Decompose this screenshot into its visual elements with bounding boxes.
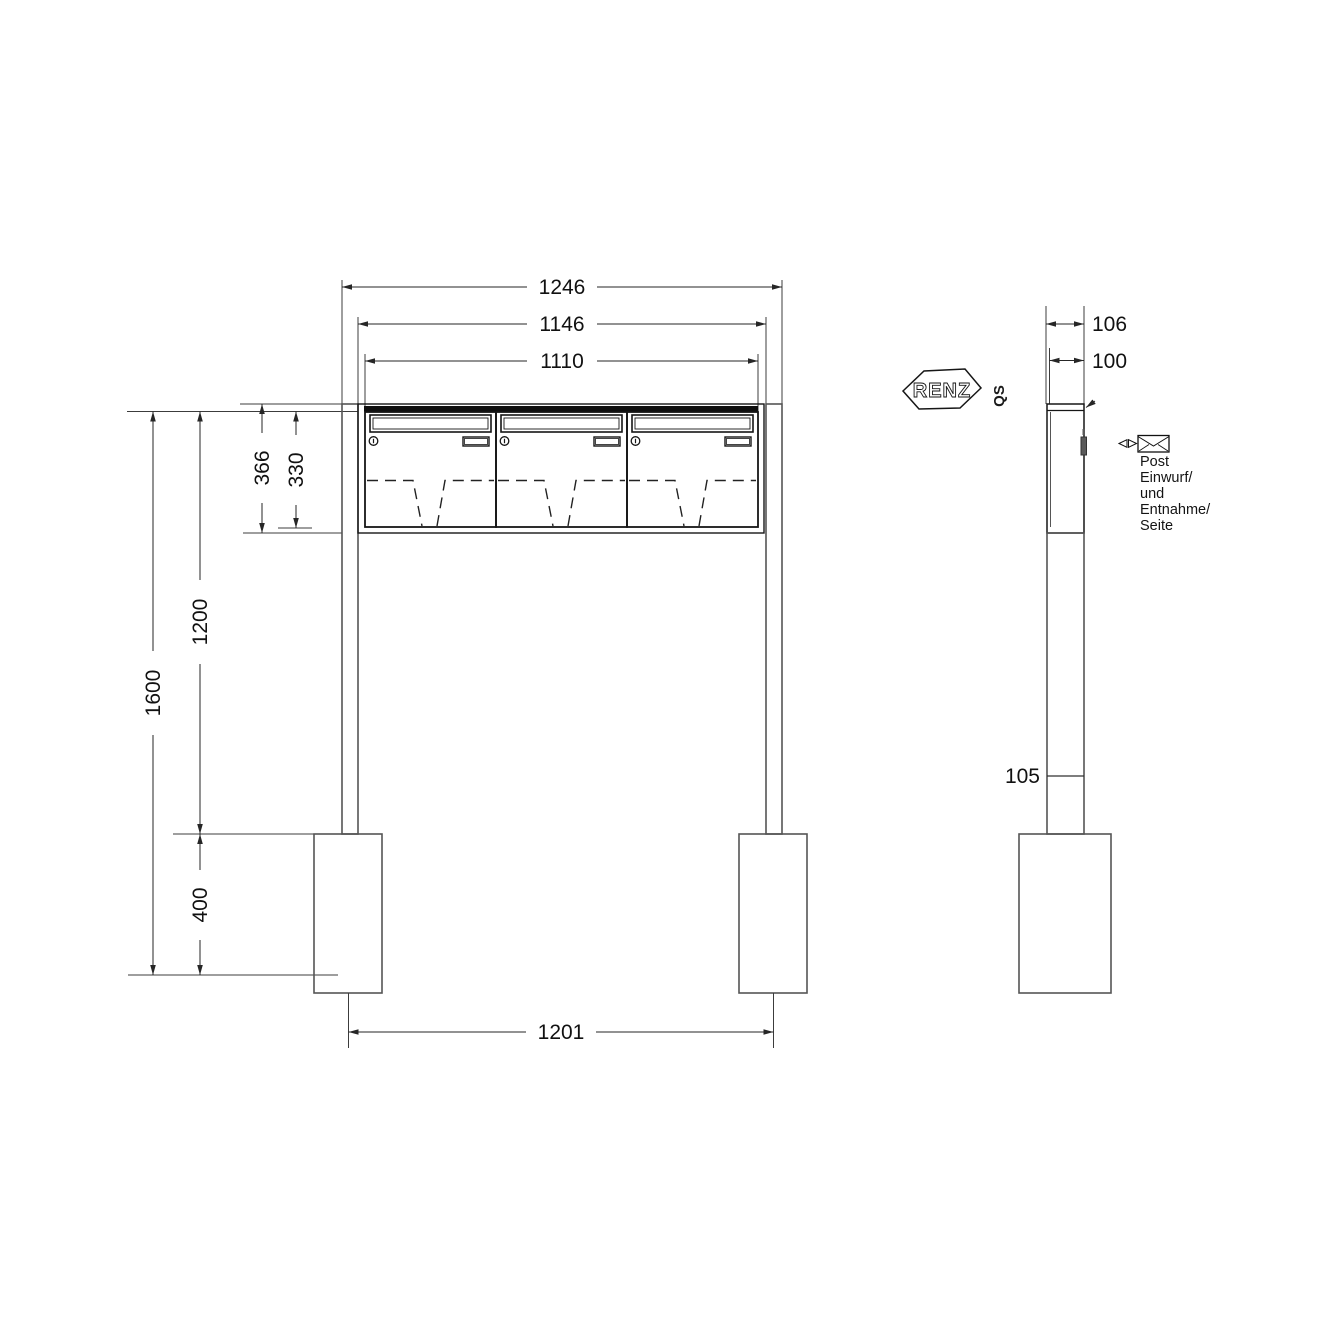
letter-slot (370, 415, 491, 432)
letter-slot (501, 415, 622, 432)
dim-body-depth-label: 100 (1092, 350, 1127, 373)
mailbox-cabinet (358, 404, 764, 533)
extension-lines-top (342, 280, 782, 412)
dim-post-spacing-label: 1201 (538, 1021, 585, 1044)
dim-post-depth-label: 105 (1005, 765, 1040, 788)
letter-slot-flap (635, 418, 750, 429)
brand-mark: RENZ QS (903, 369, 1008, 409)
mailbox-door-1 (365, 412, 496, 527)
dim-boxes-width-label: 1110 (540, 350, 584, 373)
letter-slot-flap (373, 418, 488, 429)
dim-free-height-label: 1200 (189, 599, 212, 646)
dim-overall-depth: 106 (1046, 313, 1127, 336)
side-note-line-1: Post (1140, 454, 1169, 470)
dim-body-depth: 100 (1050, 350, 1128, 373)
side-note-line-4: Entnahme/ (1140, 502, 1211, 518)
dim-overall-width: 1246 (342, 275, 782, 299)
post-right (766, 404, 782, 834)
direction-arrows-icon (1119, 440, 1137, 448)
letter-slot (632, 415, 753, 432)
post-left (342, 404, 358, 834)
dim-door-height-label: 330 (285, 452, 308, 487)
dim-total-height-label: 1600 (142, 670, 165, 717)
dim-anchor-depth-label: 400 (189, 887, 212, 922)
side-cabinet (1047, 401, 1095, 533)
dim-overall-width-label: 1246 (539, 276, 586, 299)
side-foundation-block (1019, 834, 1111, 993)
name-plate-inner (727, 439, 750, 445)
dim-boxes-width: 1110 (365, 349, 758, 373)
dim-overall-depth-label: 106 (1092, 313, 1127, 336)
dim-unit-height: 366 (250, 404, 274, 533)
envelope-icon (1138, 436, 1169, 453)
dim-body-width: 1146 (358, 312, 766, 336)
door-swing-lines (498, 481, 625, 527)
mailbox-door-3 (627, 412, 758, 527)
side-hinge-tick (1083, 429, 1086, 435)
side-note-line-2: Einwurf/ (1140, 470, 1193, 486)
dim-total-height: 1600 (141, 412, 165, 976)
side-note-line-5: Seite (1140, 518, 1173, 534)
dim-unit-height-label: 366 (251, 450, 274, 485)
side-post (1047, 533, 1084, 834)
door-swing-lines (367, 481, 494, 527)
cabinet-top-rail (364, 406, 758, 412)
dim-post-depth: 105 (1005, 765, 1084, 788)
extension-lines-side-top (1046, 306, 1084, 404)
side-view: 106 100 105 (1005, 306, 1211, 993)
side-lock-latch (1081, 437, 1087, 455)
dim-anchor-depth: 400 (188, 834, 212, 975)
dim-body-width-label: 1146 (539, 313, 584, 336)
side-note-line-3: und (1140, 486, 1164, 502)
qs-mark: QS (991, 385, 1008, 407)
front-view: 1246 1146 1110 366 (127, 275, 807, 1048)
dim-free-height: 1200 (188, 412, 212, 835)
technical-drawing: 1246 1146 1110 366 (0, 0, 1320, 1325)
dim-door-height: 330 (284, 412, 308, 529)
mailbox-door-2 (496, 412, 627, 527)
letter-slot-flap (504, 418, 619, 429)
lid-pointer-arrow (1086, 401, 1095, 408)
side-note: Post Einwurf/ und Entnahme/ Seite (1119, 436, 1211, 535)
dim-post-spacing: 1201 (349, 993, 774, 1048)
foundation-block-left (314, 834, 382, 993)
foundation-block-right (739, 834, 807, 993)
door-swing-lines (629, 481, 756, 527)
renz-logo: RENZ (913, 380, 971, 402)
name-plate-inner (465, 439, 488, 445)
name-plate-inner (596, 439, 619, 445)
